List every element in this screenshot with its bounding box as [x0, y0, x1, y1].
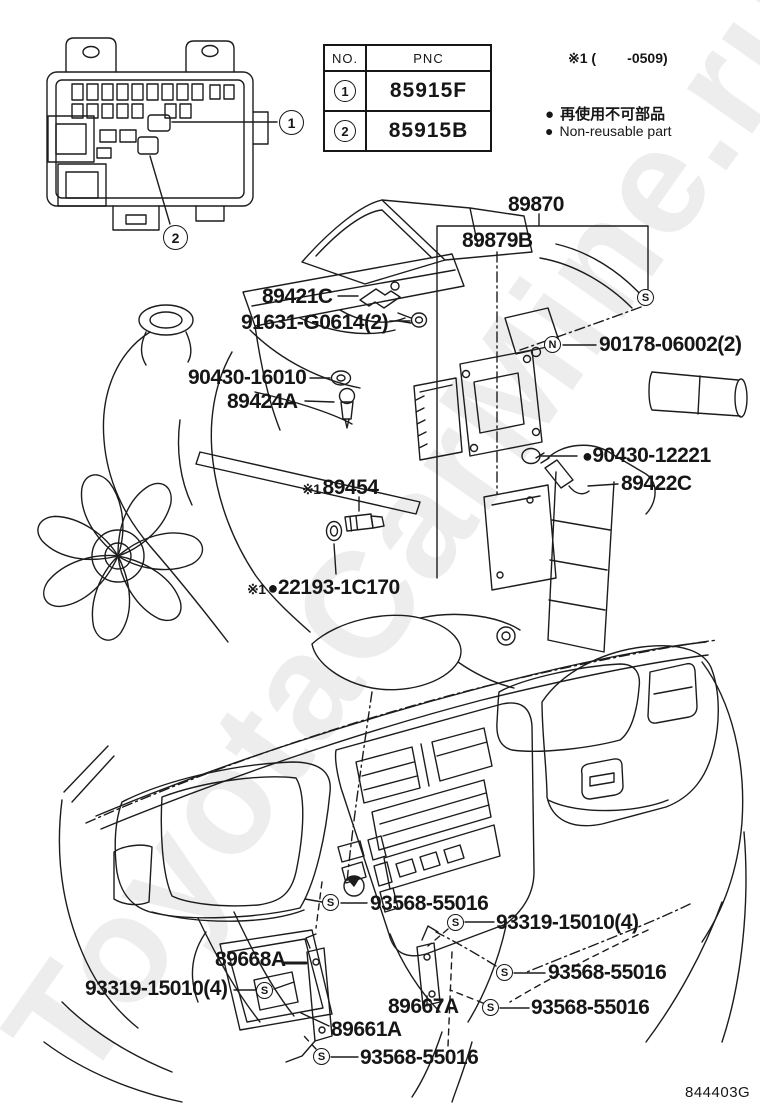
part-label-89667a: 89667A: [388, 996, 459, 1017]
part-label-89879b: 89879B: [462, 230, 533, 251]
row-number-circle: 2: [334, 120, 356, 142]
part-label-22193-1c170: ※1●22193-1C170: [247, 577, 400, 600]
legend-en: ●Non-reusable part: [545, 123, 672, 139]
part-label-89454: ※189454: [302, 477, 378, 500]
parts-table: NO. PNC 1 85915F 2 85915B: [323, 44, 492, 152]
screw-marker-icon: S: [482, 999, 499, 1016]
part-label-93568-bottom: 93568-55016: [360, 1047, 478, 1068]
part-label-90430-16010: 90430-16010: [188, 367, 306, 388]
part-label-93568-top: 93568-55016: [370, 893, 488, 914]
callout-2: 2: [163, 225, 188, 250]
screw-marker-icon: S: [496, 964, 513, 981]
callout-1: 1: [279, 110, 304, 135]
parts-table-header: NO. PNC: [325, 46, 490, 72]
parts-diagram-page: ToyotaCarMine.ru: [0, 0, 760, 1112]
part-label-90178-06002: 90178-06002(2): [599, 334, 741, 355]
col-header-pnc: PNC: [367, 46, 490, 70]
bullet-icon: ●: [545, 106, 554, 123]
part-label-89424a: 89424A: [227, 391, 298, 412]
part-label-93319-left: 93319-15010(4): [85, 978, 227, 999]
part-label-89668a: 89668A: [215, 949, 286, 970]
applicability-note: ※1 ( -0509): [568, 50, 668, 67]
screw-marker-icon: S: [313, 1048, 330, 1065]
pnc-value: 85915B: [389, 119, 469, 143]
part-label-93319-right: 93319-15010(4): [496, 912, 638, 933]
spec-mark: ※1: [302, 481, 321, 497]
annotation-layer: NO. PNC 1 85915F 2 85915B ※1 ( -0509) ●再…: [0, 0, 760, 1112]
part-label-91631: 91631-G0614(2): [241, 312, 388, 333]
screw-marker-icon: S: [256, 982, 273, 999]
part-label-89421c: 89421C: [262, 286, 333, 307]
spec-mark: ※1: [247, 581, 266, 597]
non-reusable-bullet-icon: ●: [582, 446, 592, 466]
part-label-93568-right-lower: 93568-55016: [531, 997, 649, 1018]
part-label-93568-right-upper: 93568-55016: [548, 962, 666, 983]
legend-jp: ●再使用不可部品: [545, 103, 665, 124]
table-row: 1 85915F: [325, 72, 490, 112]
part-label-89661a: 89661A: [331, 1019, 402, 1040]
pnc-value: 85915F: [390, 79, 467, 103]
screw-marker-icon: S: [322, 894, 339, 911]
table-row: 2 85915B: [325, 112, 490, 150]
drawing-code: 844403G: [685, 1084, 750, 1101]
non-reusable-bullet-icon: ●: [268, 578, 278, 598]
part-label-90430-12221: ●90430-12221: [582, 445, 711, 467]
screw-marker-icon: S: [447, 914, 464, 931]
row-number-circle: 1: [334, 80, 356, 102]
screw-marker-icon: S: [637, 289, 654, 306]
bullet-icon: ●: [545, 123, 553, 139]
part-label-89422c: 89422C: [621, 473, 692, 494]
nut-marker-icon: N: [544, 336, 561, 353]
part-label-89870: 89870: [508, 194, 564, 215]
col-header-no: NO.: [325, 46, 367, 70]
